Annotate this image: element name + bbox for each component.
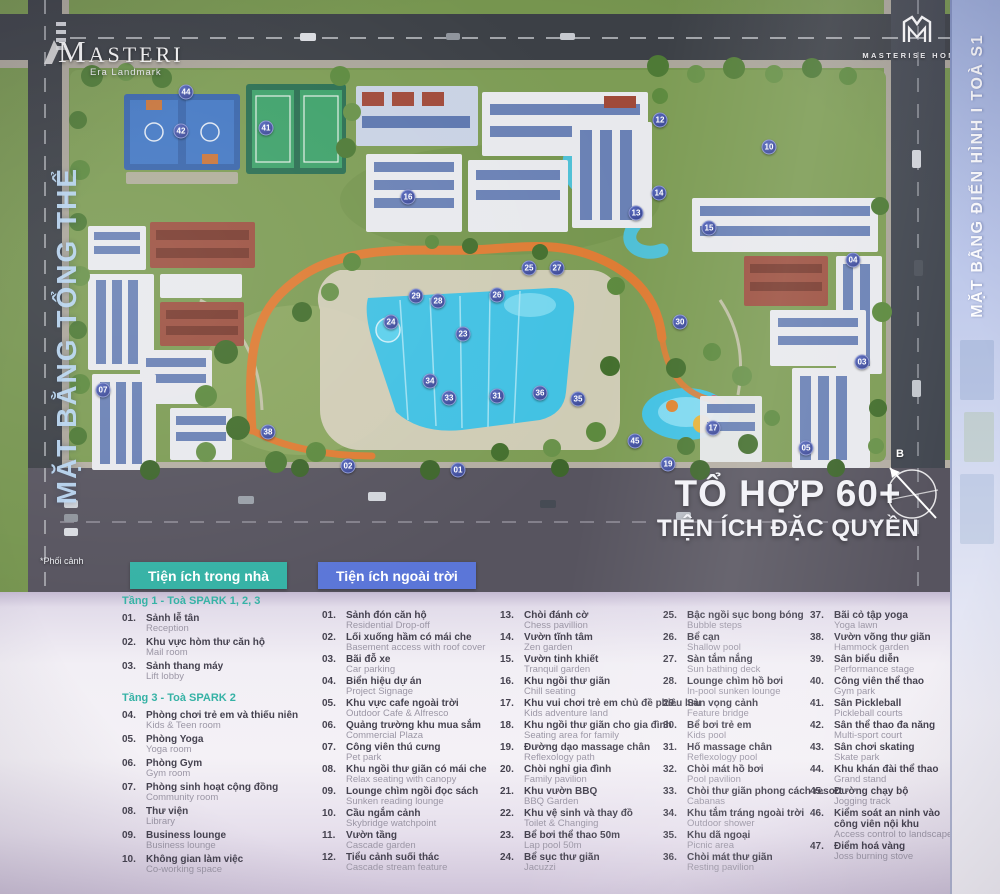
amenity-name-en: Pickleball courts [834,709,903,720]
amenity-number: 03. [122,661,143,683]
amenity-name-en: Basement access with roof cover [346,643,485,654]
amenity-item-28: 28.Lounge chìm hồ bơiIn-pool sunken loun… [663,676,811,698]
amenity-number: 37. [810,610,831,632]
amenity-item-29: 29.Sàn vọng cảnhFeature bridge [663,698,811,720]
amenity-name-en: Jacuzzi [524,863,600,874]
outdoor-amenities-column-1: 01.Sảnh đón căn hộResidential Drop-off02… [322,610,494,874]
amenity-number: 33. [663,786,684,808]
amenity-number: 04. [122,710,143,732]
amenity-item-08: 08.Thư việnLibrary [122,806,320,828]
render-footnote: *Phối cảnh [40,556,84,566]
amenity-item-05: 05.Khu vực cafe ngoài trờiOutdoor Cafe &… [322,698,494,720]
amenity-name-en: Project Signage [346,687,422,698]
map-marker-14: 14 [652,186,667,201]
amenity-name-en: Toilet & Changing [524,819,633,830]
amenity-name-en: Lap pool 50m [524,841,620,852]
amenity-item-27: 27.Sàn tắm nắngSun bathing deck [663,654,811,676]
amenity-name-en: Feature bridge [687,709,758,720]
masterise-homes-emblem-icon [899,14,935,44]
amenity-number: 23. [500,830,521,852]
amenity-number: 42. [810,720,831,742]
amenity-name-en: Bubble steps [687,621,804,632]
amenity-number: 36. [663,852,684,874]
amenity-item-21: 21.Khu vườn BBQBBQ Garden [500,786,660,808]
amenity-item-03: 03.Sảnh thang máyLift lobby [122,661,320,683]
amenity-number: 16. [500,676,521,698]
map-marker-05: 05 [799,441,814,456]
map-marker-15: 15 [702,221,717,236]
amenity-name-en: Car parking [346,665,395,676]
amenity-item-10: 10.Không gian làm việcCo-working space [122,854,320,876]
amenity-name-en: Outdoor Cafe & Alfresco [346,709,459,720]
amenity-number: 34. [663,808,684,830]
amenity-name-en: Multi-sport court [834,731,935,742]
amenity-number: 40. [810,676,831,698]
amenity-number: 09. [122,830,143,852]
amenity-name-en: Reception [146,624,199,635]
map-marker-24: 24 [384,315,399,330]
masterplan-map: 4442411210161413150425272629282423300334… [0,0,1000,592]
amenity-name-en: Reflexology pool [687,753,772,764]
amenity-item-02: 02.Khu vực hòm thư căn hộMail room [122,637,320,659]
amenity-number: 32. [663,764,684,786]
amenity-name-en: Skate park [834,753,914,764]
masteri-emblem-icon [42,36,60,66]
amenity-number: 18. [500,720,521,742]
amenity-item-19: 19.Đường dạo massage chânReflexology pat… [500,742,660,764]
amenity-name-en: Kids & Teen room [146,721,298,732]
amenity-name-en: Joss burning stove [834,852,913,863]
amenity-number: 38. [810,632,831,654]
amenity-name-en: Pool pavilion [687,775,764,786]
poster-photo: 4442411210161413150425272629282423300334… [0,0,1000,894]
amenity-number: 13. [500,610,521,632]
outdoor-amenities-column-3: 25.Bậc ngồi sục bong bóngBubble steps26.… [663,610,811,874]
strip-decor [960,474,994,544]
amenity-number: 19. [500,742,521,764]
amenity-number: 28. [663,676,684,698]
amenity-item-26: 26.Bể cạnShallow pool [663,632,811,654]
amenity-item-16: 16.Khu ngồi thư giãnChill seating [500,676,660,698]
amenity-item-35: 35.Khu dã ngoạiPicnic area [663,830,811,852]
amenity-item-24: 24.Bể sục thư giãnJacuzzi [500,852,660,874]
map-marker-13: 13 [629,206,644,221]
outdoor-amenities-header: Tiện ích ngoài trời [318,562,476,589]
amenity-item-02: 02.Lối xuống hầm có mái cheBasement acce… [322,632,494,654]
amenity-name-en: Library [146,817,188,828]
amenity-item-36: 36.Chòi mát thư giãnResting pavilion [663,852,811,874]
amenity-number: 01. [122,613,143,635]
amenity-item-18: 18.Khu ngồi thư giãn cho gia đìnhSeating… [500,720,660,742]
map-marker-16: 16 [401,190,416,205]
map-marker-30: 30 [673,315,688,330]
amenity-number: 07. [122,782,143,804]
map-marker-35: 35 [571,392,586,407]
amenity-name-en: Tranquil garden [524,665,598,676]
map-marker-19: 19 [661,457,676,472]
amenity-number: 30. [663,720,684,742]
amenity-name-en: Gym park [834,687,924,698]
amenity-item-11: 11.Vườn tầngCascade garden [322,830,494,852]
amenity-number: 10. [322,808,343,830]
amenity-name-en: Business lounge [146,841,226,852]
amenity-number: 12. [322,852,343,874]
map-marker-41: 41 [259,121,274,136]
amenity-number: 26. [663,632,684,654]
amenity-item-12: 12.Tiểu cảnh suối thácCascade stream fea… [322,852,494,874]
amenity-number: 07. [322,742,343,764]
amenity-number: 15. [500,654,521,676]
amenity-number: 06. [122,758,143,780]
map-marker-31: 31 [490,389,505,404]
amenity-number: 01. [322,610,343,632]
amenity-item-22: 22.Khu vệ sinh và thay đồToilet & Changi… [500,808,660,830]
amenity-name-vi: Phòng Gym [146,758,202,769]
outdoor-amenities-column-2: 13.Chòi đánh cờChess pavillion14.Vườn tĩ… [500,610,660,874]
map-marker-04: 04 [846,253,861,268]
amenity-name-vi: Phòng Yoga [146,734,203,745]
amenity-name-en: Lift lobby [146,672,223,683]
amenity-item-14: 14.Vườn tĩnh tâmZen garden [500,632,660,654]
amenity-number: 31. [663,742,684,764]
compass-north-label: B [896,448,904,460]
map-marker-25: 25 [522,261,537,276]
amenity-item-20: 20.Chòi nghỉ gia đìnhFamily pavilion [500,764,660,786]
typical-plan-vertical-title: MẶT BẰNG ĐIỂN HÌNH I TOÀ S1 [969,34,987,318]
amenity-name-en: Community room [146,793,278,804]
amenity-name-vi: Thư viện [146,806,188,817]
map-marker-36: 36 [533,386,548,401]
amenity-number: 06. [322,720,343,742]
amenity-number: 43. [810,742,831,764]
map-marker-10: 10 [762,140,777,155]
amenity-name-en: Sunken reading lounge [346,797,478,808]
amenity-name-en: Sun bathing deck [687,665,760,676]
amenity-name-en: Chill seating [524,687,610,698]
map-marker-26: 26 [490,288,505,303]
amenity-item-04: 04.Phòng chơi trẻ em và thiếu niênKids &… [122,710,320,732]
amenity-item-32: 32.Chòi mát hồ bơiPool pavilion [663,764,811,786]
amenity-number: 45. [810,786,831,808]
amenity-number: 10. [122,854,143,876]
amenity-item-09: 09.Lounge chìm ngồi đọc sáchSunken readi… [322,786,494,808]
amenity-name-en: Yoga room [146,745,203,756]
map-marker-27: 27 [550,261,565,276]
amenity-item-01: 01.Sảnh đón căn hộResidential Drop-off [322,610,494,632]
amenity-number: 39. [810,654,831,676]
amenity-item-17: 17.Khu vui chơi trẻ em chủ đề phiêu lưuK… [500,698,660,720]
amenity-item-07: 07.Công viên thú cưngPet park [322,742,494,764]
amenity-item-09: 09.Business loungeBusiness lounge [122,830,320,852]
amenity-number: 44. [810,764,831,786]
amenity-item-33: 33.Chòi thư giãn phong cách resortCabana… [663,786,811,808]
amenity-number: 03. [322,654,343,676]
amenity-number: 22. [500,808,521,830]
amenity-number: 46. [810,808,831,841]
right-panel-strip: MẶT BẰNG ĐIỂN HÌNH I TOÀ S1 [950,0,1000,894]
amenity-number: 20. [500,764,521,786]
amenity-number: 02. [122,637,143,659]
amenity-name-en: Outdoor shower [687,819,804,830]
map-marker-02: 02 [341,459,356,474]
amenity-number: 09. [322,786,343,808]
amenity-number: 25. [663,610,684,632]
amenity-number: 35. [663,830,684,852]
map-marker-23: 23 [456,327,471,342]
amenity-name-vi: Phòng chơi trẻ em và thiếu niên [146,710,298,721]
amenity-item-34: 34.Khu tắm tráng ngoài trờiOutdoor showe… [663,808,811,830]
amenity-name-en: Kids pool [687,731,751,742]
amenity-name-en: Family pavilion [524,775,611,786]
amenity-item-03: 03.Bãi đỗ xeCar parking [322,654,494,676]
amenity-name-vi: Phòng sinh hoạt cộng đồng [146,782,278,793]
map-marker-42: 42 [174,124,189,139]
amenity-name-en: Co-working space [146,865,243,876]
map-marker-34: 34 [423,374,438,389]
amenity-name-en: Access control to landscape [834,830,952,841]
amenity-name-en: Grand stand [834,775,938,786]
amenity-number: 04. [322,676,343,698]
amenity-number: 27. [663,654,684,676]
amenity-number: 41. [810,698,831,720]
masteri-logo: MASTERI Era Landmark [58,34,184,78]
amenity-name-en: Seating area for family [524,731,672,742]
map-marker-12: 12 [653,113,668,128]
amenity-item-01: 01.Sảnh lễ tânReception [122,613,320,635]
amenity-name-en: Performance stage [834,665,914,676]
amenity-name-en: Shallow pool [687,643,741,654]
amenity-name-vi: Không gian làm việc [146,854,243,865]
amenity-name-vi: Business lounge [146,830,226,841]
amenity-number: 17. [500,698,521,720]
map-marker-17: 17 [706,421,721,436]
compass-icon: B [874,450,944,526]
strip-decor [960,340,994,400]
amenity-name-en: In-pool sunken lounge [687,687,783,698]
amenity-name-en: Chess pavillion [524,621,588,632]
amenity-name-en: Jogging track [834,797,908,808]
amenity-number: 14. [500,632,521,654]
map-marker-44: 44 [179,85,194,100]
amenity-name-en: Gym room [146,769,202,780]
map-marker-45: 45 [628,434,643,449]
amenity-number: 05. [122,734,143,756]
amenity-name-en: Commercial Plaza [346,731,481,742]
amenity-item-10: 10.Cầu ngắm cảnhSkybridge watchpoint [322,808,494,830]
amenity-number: 29. [663,698,684,720]
amenity-name-en: Zen garden [524,643,593,654]
amenity-name-en: Relax seating with canopy [346,775,487,786]
amenity-number: 02. [322,632,343,654]
amenity-name-en: Yoga lawn [834,621,908,632]
amenity-number: 24. [500,852,521,874]
amenity-number: 08. [322,764,343,786]
amenity-name-en: Residential Drop-off [346,621,430,632]
amenity-name-en: Cascade garden [346,841,416,852]
strip-decor [964,412,994,462]
amenity-item-25: 25.Bậc ngồi sục bong bóngBubble steps [663,610,811,632]
map-marker-38: 38 [261,425,276,440]
amenity-item-23: 23.Bể bơi thể thao 50mLap pool 50m [500,830,660,852]
indoor-amenities-header: Tiện ích trong nhà [130,562,287,589]
amenity-name-en: Mail room [146,648,265,659]
amenity-number: 11. [322,830,343,852]
amenity-item-06: 06.Quảng trường khu mua sắmCommercial Pl… [322,720,494,742]
map-marker-07: 07 [96,383,111,398]
amenity-name-en: Hammock garden [834,643,931,654]
amenity-name-en: Pet park [346,753,440,764]
amenity-name-en: Cascade stream feature [346,863,447,874]
amenity-name-en: BBQ Garden [524,797,597,808]
amenity-item-06: 06.Phòng GymGym room [122,758,320,780]
overall-plan-vertical-title: MẶT BẰNG TỔNG THỂ [44,166,90,506]
amenity-item-08: 08.Khu ngồi thư giãn có mái cheRelax sea… [322,764,494,786]
amenity-item-07: 07.Phòng sinh hoạt cộng đồngCommunity ro… [122,782,320,804]
amenity-number: 05. [322,698,343,720]
amenity-name-en: Skybridge watchpoint [346,819,436,830]
amenity-number: 47. [810,841,831,863]
map-marker-01: 01 [451,463,466,478]
amenity-number: 21. [500,786,521,808]
amenity-name-vi: Kiểm soát an ninh vào công viên nội khu [834,808,952,830]
amenity-name-en: Reflexology path [524,753,650,764]
masteri-logo-title: MASTERI [58,34,184,70]
amenity-name-en: Resting pavilion [687,863,773,874]
map-marker-33: 33 [442,391,457,406]
amenity-item-31: 31.Hố massage chânReflexology pool [663,742,811,764]
map-marker-03: 03 [855,355,870,370]
map-marker-28: 28 [431,294,446,309]
amenity-item-15: 15.Vườn tinh khiếtTranquil garden [500,654,660,676]
amenity-item-04: 04.Biển hiệu dự ánProject Signage [322,676,494,698]
map-marker-29: 29 [409,289,424,304]
amenity-item-05: 05.Phòng YogaYoga room [122,734,320,756]
amenity-item-13: 13.Chòi đánh cờChess pavillion [500,610,660,632]
indoor-amenities-column: Tầng 1 - Toà SPARK 1, 2, 301.Sảnh lễ tân… [122,595,320,878]
amenity-number: 08. [122,806,143,828]
indoor-group-title: Tầng 3 - Toà SPARK 2 [122,692,320,704]
indoor-group-title: Tầng 1 - Toà SPARK 1, 2, 3 [122,595,320,607]
amenity-item-30: 30.Bể bơi trẻ emKids pool [663,720,811,742]
amenity-name-en: Picnic area [687,841,750,852]
